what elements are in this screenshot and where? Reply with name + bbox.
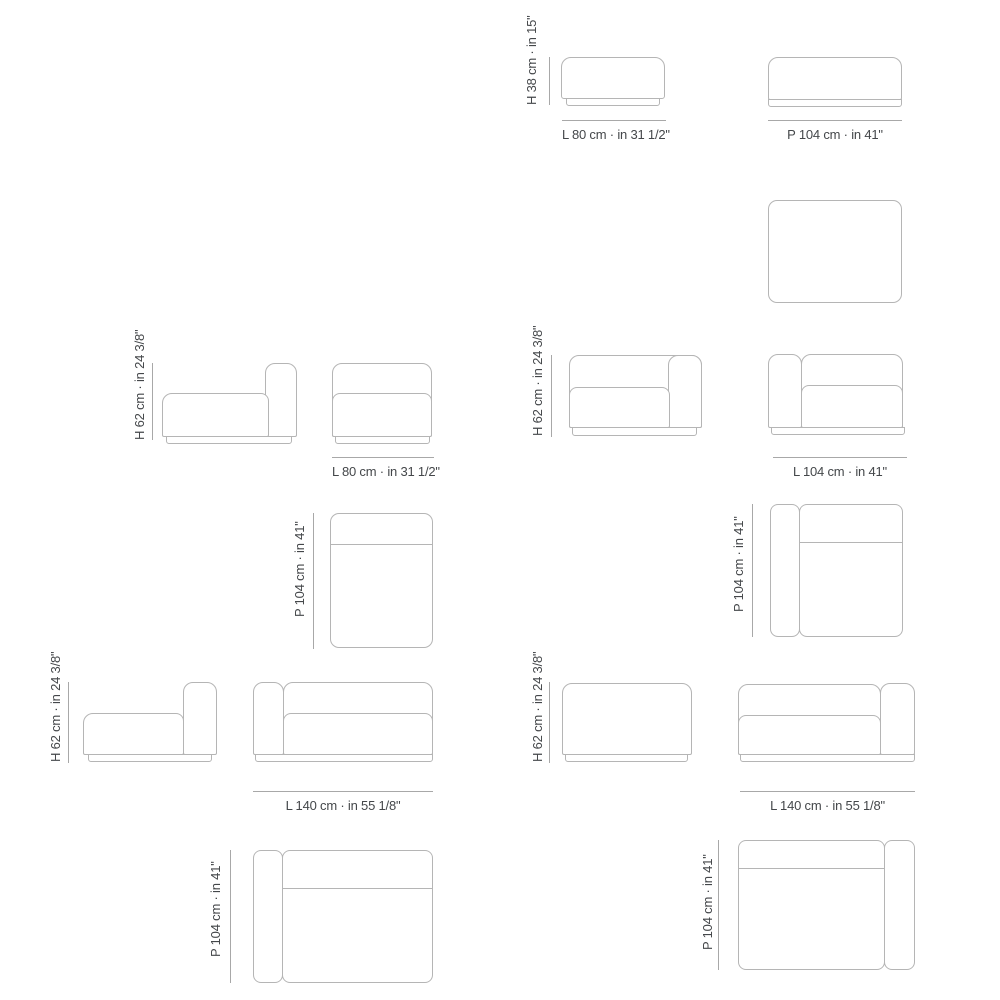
base-outline [565, 754, 688, 762]
spec-sheet-canvas: H 38 cm · in 15" L 80 cm · in 31 1/2" P … [0, 0, 1000, 1000]
length-dim-line [740, 791, 915, 792]
top-view-outline [738, 840, 885, 970]
length-dim-label: L 140 cm · in 55 1/8" [740, 797, 915, 814]
seat-outline [738, 715, 881, 755]
depth-dim-line [718, 840, 719, 970]
depth-dim-label: P 104 cm · in 41" [699, 854, 716, 950]
armrest-outline [880, 683, 915, 755]
height-dim-label: H 62 cm · in 24 3/8" [529, 652, 546, 762]
armrest-side-outline [562, 683, 692, 755]
height-dim-line [549, 682, 550, 763]
backrest-split-line [739, 868, 884, 869]
armrest-top-view-outline [884, 840, 915, 970]
module-140cm-right-spec: H 62 cm · in 24 3/8" L 140 cm · in 55 1/… [0, 0, 1000, 1000]
base-outline [740, 754, 915, 762]
